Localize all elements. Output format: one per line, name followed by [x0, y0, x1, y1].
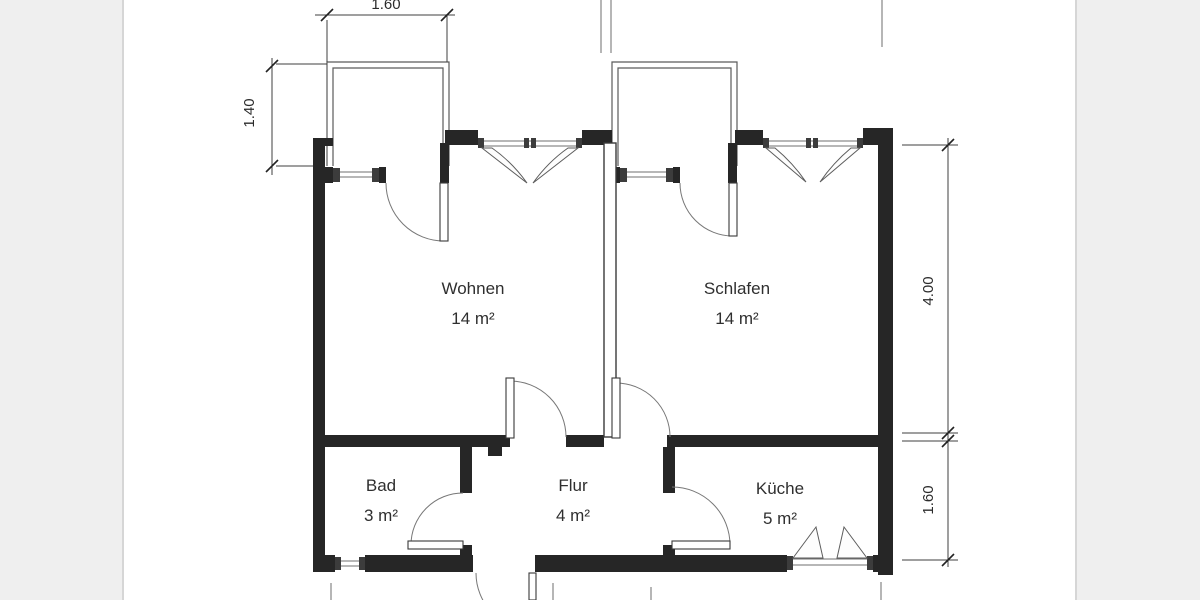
- room-name: Schlafen: [704, 279, 770, 298]
- paper-background: [0, 0, 1200, 600]
- dimension-label-left: 1.40: [241, 98, 258, 127]
- room-area: 3 m²: [364, 506, 398, 525]
- room-area: 4 m²: [556, 506, 590, 525]
- floor-plan-drawing: 1.60 1.40 4.00 1.60 Wohnen 14 m² Schlafe…: [0, 0, 1200, 600]
- floor-plan-page: 1.60 1.40 4.00 1.60 Wohnen 14 m² Schlafe…: [0, 0, 1200, 600]
- room-name: Küche: [756, 479, 804, 498]
- room-name: Flur: [558, 476, 588, 495]
- room-area: 14 m²: [715, 309, 759, 328]
- dimension-label-right-lower: 1.60: [920, 485, 937, 514]
- room-area: 5 m²: [763, 509, 797, 528]
- room-area: 14 m²: [451, 309, 495, 328]
- dimension-label-right-upper: 4.00: [920, 276, 937, 305]
- dimension-label-top: 1.60: [371, 0, 400, 13]
- room-name: Bad: [366, 476, 396, 495]
- room-name: Wohnen: [441, 279, 504, 298]
